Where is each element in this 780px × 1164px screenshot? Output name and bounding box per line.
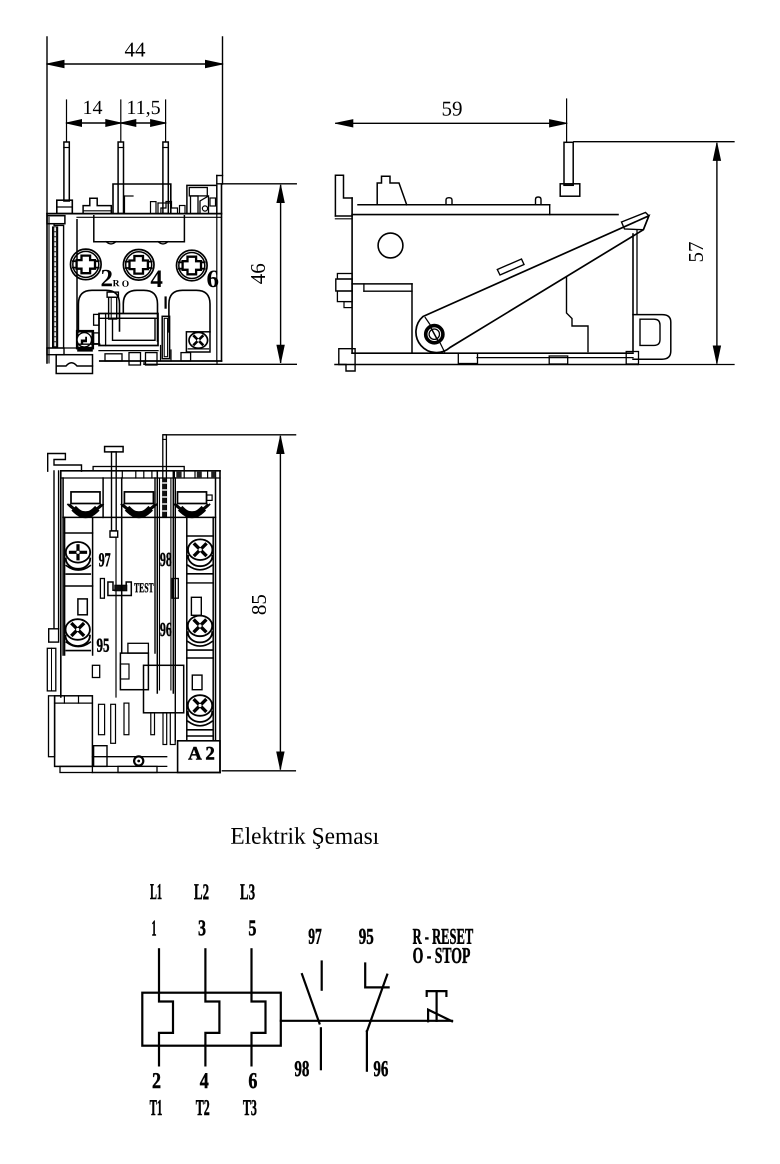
svg-text:2: 2 (152, 1068, 161, 1093)
svg-text:59: 59 (441, 96, 462, 120)
svg-text:O: O (122, 280, 129, 290)
svg-text:96: 96 (373, 1056, 388, 1081)
svg-text:2: 2 (101, 265, 114, 292)
svg-text:A 2: A 2 (188, 743, 215, 764)
svg-text:98: 98 (160, 549, 172, 571)
svg-text:L3: L3 (240, 879, 255, 904)
svg-text:46: 46 (246, 263, 270, 284)
svg-text:6: 6 (206, 266, 219, 293)
svg-text:O - STOP: O - STOP (413, 943, 471, 968)
svg-text:5: 5 (248, 915, 256, 940)
svg-text:R: R (113, 279, 120, 289)
svg-text:97: 97 (308, 924, 322, 949)
svg-text:11,5: 11,5 (126, 97, 160, 119)
svg-text:96: 96 (160, 619, 172, 641)
svg-text:3: 3 (198, 915, 206, 940)
svg-text:T1: T1 (150, 1095, 163, 1120)
svg-text:98: 98 (294, 1056, 309, 1081)
svg-text:85: 85 (247, 594, 271, 615)
svg-text:T3: T3 (243, 1095, 257, 1120)
svg-text:1: 1 (151, 915, 156, 940)
svg-text:14: 14 (82, 97, 102, 119)
svg-text:TEST: TEST (134, 580, 154, 595)
svg-text:4: 4 (200, 1068, 209, 1093)
svg-text:6: 6 (248, 1068, 257, 1093)
svg-text:95: 95 (96, 635, 109, 657)
svg-text:95: 95 (359, 924, 374, 949)
svg-text:Elektrik Şeması: Elektrik Şeması (230, 824, 379, 850)
svg-text:44: 44 (124, 37, 146, 61)
svg-text:L2: L2 (194, 879, 209, 904)
svg-text:97: 97 (99, 549, 111, 571)
svg-text:57: 57 (684, 242, 708, 263)
svg-text:L1: L1 (150, 879, 162, 904)
svg-text:T2: T2 (196, 1095, 210, 1120)
svg-text:4: 4 (150, 266, 163, 293)
